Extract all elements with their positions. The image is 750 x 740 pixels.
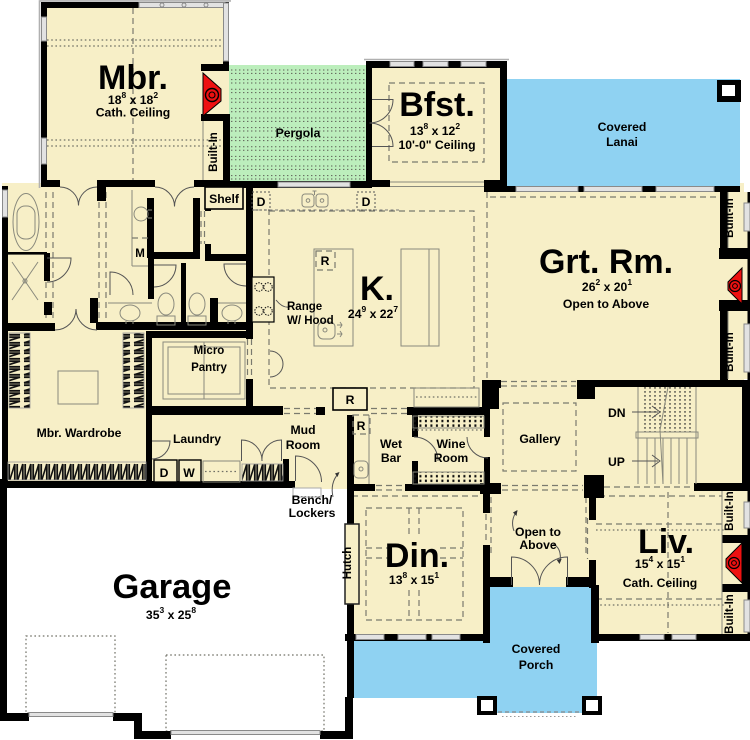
- svg-text:M: M: [135, 248, 145, 260]
- svg-text:138 x 122: 138 x 122: [410, 121, 460, 138]
- svg-text:UP: UP: [608, 455, 625, 469]
- svg-text:138 x 151: 138 x 151: [389, 570, 439, 587]
- svg-text:188 x 182: 188 x 182: [108, 90, 158, 107]
- svg-text:Mbr. Wardrobe: Mbr. Wardrobe: [37, 426, 122, 440]
- svg-text:Pantry: Pantry: [191, 362, 227, 374]
- svg-text:Micro: Micro: [194, 345, 225, 357]
- svg-text:Built-In: Built-In: [724, 332, 736, 372]
- svg-text:Garage: Garage: [113, 568, 232, 606]
- svg-text:Wet: Wet: [380, 437, 402, 451]
- svg-text:Din.: Din.: [385, 537, 449, 575]
- svg-text:Porch: Porch: [519, 658, 554, 672]
- svg-text:Built-In: Built-In: [724, 594, 736, 634]
- svg-text:Laundry: Laundry: [173, 432, 221, 446]
- svg-text:Cath. Ceiling: Cath. Ceiling: [623, 576, 697, 590]
- svg-text:Liv.: Liv.: [638, 523, 694, 561]
- svg-text:Mud: Mud: [290, 423, 315, 437]
- svg-text:Bar: Bar: [381, 451, 402, 465]
- svg-text:W/ Hood: W/ Hood: [287, 315, 334, 327]
- svg-text:R: R: [321, 254, 330, 268]
- svg-text:R: R: [346, 393, 355, 407]
- svg-text:D: D: [160, 466, 169, 480]
- svg-text:Gallery: Gallery: [519, 432, 561, 446]
- svg-text:Lanai: Lanai: [606, 135, 638, 149]
- svg-text:Built-In: Built-In: [208, 132, 220, 172]
- svg-text:Wine: Wine: [436, 437, 465, 451]
- svg-text:353 x 258: 353 x 258: [146, 605, 196, 622]
- svg-text:Built-In: Built-In: [724, 198, 736, 238]
- svg-text:DN: DN: [608, 406, 626, 420]
- svg-text:Bfst.: Bfst.: [399, 86, 475, 124]
- svg-text:R: R: [357, 419, 366, 433]
- svg-text:Range: Range: [287, 301, 322, 313]
- svg-text:Room: Room: [286, 438, 321, 452]
- svg-text:Built-In: Built-In: [724, 491, 736, 531]
- svg-text:Pergola: Pergola: [276, 126, 321, 140]
- svg-text:Open to Above: Open to Above: [563, 297, 649, 311]
- svg-text:D: D: [362, 195, 371, 209]
- svg-text:Cath. Ceiling: Cath. Ceiling: [96, 106, 170, 120]
- svg-text:10'-0" Ceiling: 10'-0" Ceiling: [398, 138, 475, 152]
- svg-text:Open to: Open to: [515, 525, 561, 539]
- svg-text:Lockers: Lockers: [289, 506, 336, 520]
- svg-text:K.: K.: [360, 270, 394, 308]
- svg-text:Room: Room: [434, 451, 469, 465]
- svg-text:249 x 227: 249 x 227: [348, 304, 398, 321]
- svg-text:154 x 151: 154 x 151: [635, 554, 685, 571]
- svg-text:Bench/: Bench/: [292, 493, 333, 507]
- svg-text:262 x 201: 262 x 201: [582, 277, 632, 294]
- svg-text:Hutch: Hutch: [342, 547, 354, 580]
- svg-text:Above: Above: [519, 538, 556, 552]
- svg-text:Grt. Rm.: Grt. Rm.: [539, 243, 673, 281]
- svg-text:D: D: [257, 195, 266, 209]
- svg-text:Covered: Covered: [598, 120, 647, 134]
- svg-text:Shelf: Shelf: [209, 192, 240, 206]
- svg-text:Covered: Covered: [512, 642, 561, 656]
- svg-text:W: W: [183, 466, 195, 480]
